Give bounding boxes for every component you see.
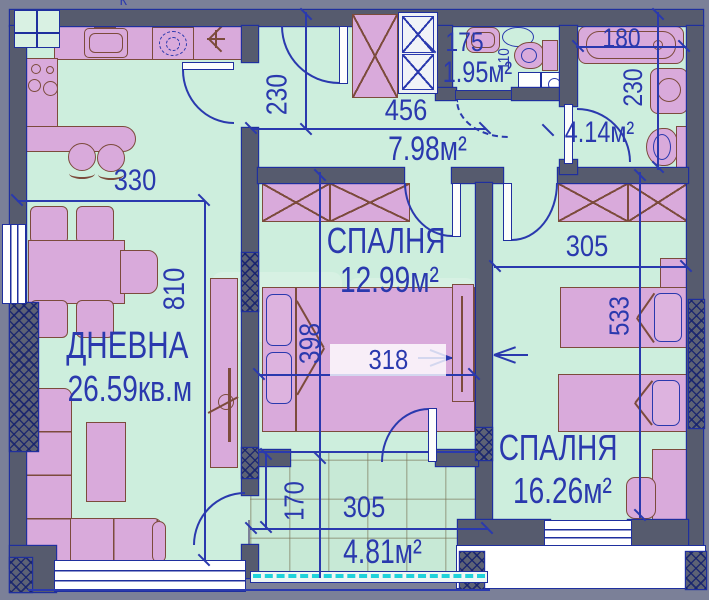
- wall-hatch: [242, 253, 258, 311]
- dim-305-bedroom2: 305: [548, 230, 626, 264]
- wall-bedroom-divider: [476, 183, 492, 545]
- entry-door-leaf: [339, 26, 348, 84]
- exterior-apron: [456, 545, 706, 589]
- bar-stool: [68, 143, 96, 171]
- living-bottom-window: [54, 560, 246, 592]
- dim-line-330: [17, 200, 205, 202]
- dining-chair: [30, 206, 68, 244]
- room-label-bedroom2: СПАЛНЯ: [494, 428, 622, 468]
- room-label-living: ДНЕВНА: [62, 326, 192, 366]
- dim-533: 533: [598, 284, 640, 348]
- wall-hatch: [242, 448, 258, 478]
- dim-175: 175: [434, 26, 496, 58]
- wall-hall-pier: [452, 168, 503, 183]
- coffee-table: [86, 422, 126, 502]
- tv-screen-bedroom1: [461, 296, 463, 392]
- terrace-railing: [250, 571, 488, 583]
- dim-456: 456: [372, 94, 440, 128]
- dining-chair: [76, 206, 114, 244]
- wall-bath-left: [560, 26, 577, 106]
- bedroom1-door-leaf: [452, 183, 461, 237]
- dim-110: 110: [492, 36, 518, 82]
- dim-line-170: [265, 452, 267, 530]
- room-area-living: 26.59кв.м: [48, 368, 212, 410]
- dim-230-bath: 230: [612, 56, 656, 118]
- bedroom1-terrace-door-leaf: [428, 408, 437, 462]
- kitchen-counter-top: [54, 26, 247, 60]
- dim-line-305-bedroom2: [494, 266, 688, 268]
- dim-line-230-hall: [305, 12, 307, 130]
- dim-330: 330: [102, 164, 168, 198]
- dim-170: 170: [274, 470, 314, 532]
- stove-burner: [31, 64, 41, 74]
- dining-table: [28, 240, 125, 304]
- wall-hatch: [689, 300, 704, 428]
- room-area-bathroom: 4.14м²: [548, 114, 652, 152]
- dim-398: 398: [290, 306, 332, 380]
- room-area-hall: 7.98м²: [368, 130, 486, 168]
- living-left-window: [2, 224, 26, 304]
- wardrobe-bedroom2: [628, 183, 688, 222]
- wall-bedroom2-bottom: [628, 520, 688, 545]
- wall-hall-bottom: [558, 168, 688, 183]
- kitchen-sink: [84, 28, 128, 58]
- wall-hall-bottom: [258, 168, 404, 183]
- wall-living-divider: [242, 128, 258, 495]
- wardrobe-bedroom1: [330, 183, 410, 222]
- corner-sofa: [70, 518, 162, 565]
- dim-180: 180: [590, 23, 654, 53]
- wardrobe-bedroom2: [558, 183, 628, 222]
- pillow: [652, 380, 680, 426]
- wall-hatch: [476, 428, 492, 460]
- wall-living-divider: [242, 26, 258, 62]
- wall-bedroom2-bottom: [458, 520, 550, 545]
- floor-plan: ДНЕВНА 26.59кв.м СПАЛНЯ 12.99м² СПАЛНЯ 1…: [0, 0, 709, 600]
- plot-bottom-line: [28, 589, 490, 591]
- stove-burner: [28, 79, 41, 92]
- wall-right: [687, 26, 703, 545]
- kitchen-door-leaf: [182, 62, 234, 70]
- stove-burner: [43, 81, 58, 96]
- room-area-terrace: 4.81м²: [324, 532, 440, 572]
- corner-mark: К: [110, 0, 136, 10]
- faucet-line: [94, 26, 116, 28]
- dim-230-hall: 230: [256, 62, 300, 126]
- dim-line-230-bath: [657, 12, 659, 170]
- bedroom2-bottom-window: [544, 520, 632, 547]
- dim-810: 810: [152, 256, 198, 322]
- terrace-threshold-line: [258, 451, 478, 453]
- dim-305-terrace: 305: [326, 490, 402, 526]
- room-area-bedroom1: 12.99м²: [328, 260, 450, 300]
- tv-cabinet-bedroom1: [452, 284, 474, 402]
- toilet-tank-wc: [542, 40, 558, 71]
- room-area-bedroom2: 16.26м²: [496, 470, 628, 512]
- wall-hatch: [10, 303, 38, 451]
- desk-chair: [626, 477, 656, 519]
- bedroom2-door-leaf: [503, 183, 512, 241]
- washing-machine: [152, 27, 194, 60]
- dim-318: 318: [330, 344, 446, 376]
- tv-cabinet-living: [210, 278, 238, 468]
- sofa-armrest: [152, 521, 166, 563]
- kitchen-corner-window: [14, 10, 60, 48]
- stove-burner: [46, 66, 54, 74]
- wall-hatch: [686, 552, 706, 589]
- pillow: [266, 352, 292, 404]
- pillow: [654, 293, 682, 342]
- pillow: [266, 294, 292, 346]
- room-label-bedroom1: СПАЛНЯ: [324, 222, 448, 260]
- wardrobe-hall: [352, 14, 398, 98]
- wall-hatch: [10, 558, 32, 592]
